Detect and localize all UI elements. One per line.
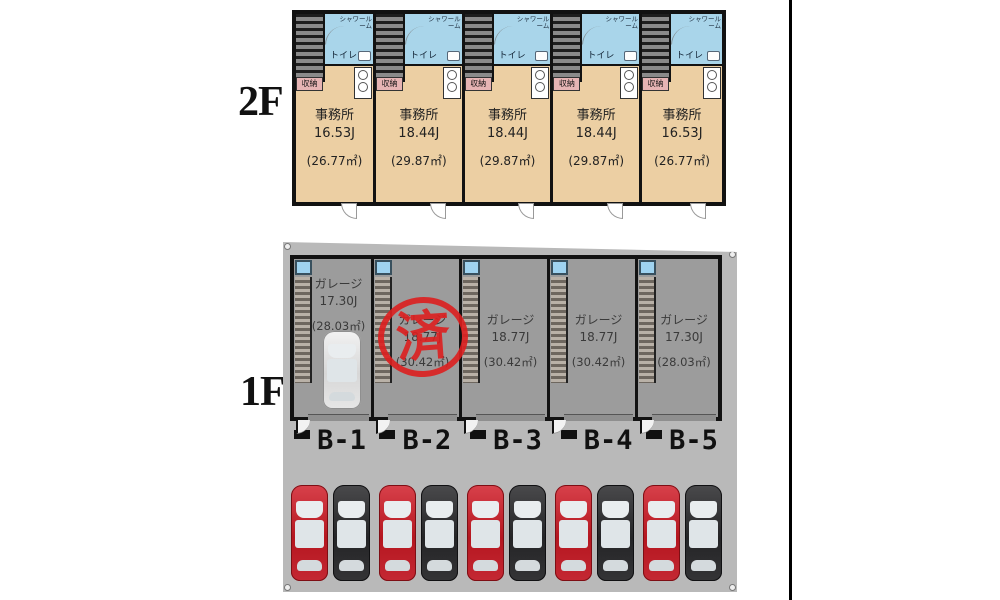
toilet-label: トイレ	[330, 48, 357, 61]
room-type-label: 事務所	[296, 104, 373, 123]
parking-car-icon	[333, 485, 370, 581]
room-size-jou: 18.44J	[553, 126, 639, 141]
parking-car-icon	[555, 485, 592, 581]
floor-1-building: ガレージ 17.30J (28.03㎡) ガレージ 18.77J (30.42㎡…	[290, 255, 722, 421]
parking-car-icon	[379, 485, 416, 581]
parking-car-icon	[421, 485, 458, 581]
parked-car-icon	[323, 331, 361, 409]
parking-car-icon	[509, 485, 546, 581]
toilet-label: トイレ	[587, 48, 614, 61]
office-unit-5: シャワールーム トイレ 収納 事務所 16.53J (26.77㎡)	[642, 14, 722, 202]
room-size-m2: (26.77㎡)	[296, 152, 373, 169]
stairs-icon	[376, 14, 405, 82]
entry-door-arc-icon	[518, 203, 534, 219]
room-type-label: 事務所	[642, 104, 722, 123]
room-type-label: 事務所	[376, 104, 462, 123]
garage-size-jou: 18.77J	[474, 330, 547, 344]
office-unit-1: シャワールーム トイレ 収納 事務所 16.53J (26.77㎡)	[296, 14, 376, 202]
survey-marker-icon	[729, 251, 736, 258]
toilet-icon	[447, 51, 460, 61]
floor-plan-image: 2F シャワールーム トイレ 収納 事務所 16.53J (26.77㎡) シャ…	[0, 0, 1000, 600]
garage-size-m2: (30.42㎡)	[562, 354, 635, 370]
unit-id-label-b5: B-5	[642, 425, 722, 456]
garage-label-block: ガレージ 18.77J (30.42㎡)	[474, 311, 547, 370]
parking-car-icon	[597, 485, 634, 581]
entry-door-arc-icon	[341, 203, 357, 219]
room-size-m2: (29.87㎡)	[553, 152, 639, 169]
office-label-block: 事務所 18.44J (29.87㎡)	[465, 104, 551, 169]
room-size-jou: 16.53J	[642, 126, 722, 141]
shower-room-label: シャワールーム	[602, 16, 638, 31]
garage-shutter	[308, 414, 369, 421]
room-size-m2: (29.87㎡)	[465, 152, 551, 169]
garage-type-label: ガレージ	[650, 311, 718, 328]
room-size-m2: (29.87㎡)	[376, 152, 462, 169]
garage-size-jou: 17.30J	[650, 330, 718, 344]
office-unit-4: シャワールーム トイレ 収納 事務所 18.44J (29.87㎡)	[553, 14, 642, 202]
parking-car-icon	[467, 485, 504, 581]
toilet-icon	[535, 51, 548, 61]
garage-shutter	[388, 414, 457, 421]
garage-size-jou: 17.30J	[306, 294, 371, 308]
floor-2-plan: シャワールーム トイレ 収納 事務所 16.53J (26.77㎡) シャワール…	[292, 10, 726, 206]
floor-2-label: 2F	[238, 78, 283, 126]
garage-shutter	[564, 414, 633, 421]
office-label-block: 事務所 18.44J (29.87㎡)	[376, 104, 462, 169]
shower-room-label: シャワールーム	[513, 16, 549, 31]
kitchen-stove-icon	[531, 67, 549, 99]
toilet-icon	[358, 51, 371, 61]
room-size-jou: 18.44J	[465, 126, 551, 141]
kitchen-stove-icon	[354, 67, 372, 99]
garage-unit-b2: ガレージ 18.77J (30.42㎡) 済	[374, 259, 462, 417]
survey-marker-icon	[729, 584, 736, 591]
garage-type-label: ガレージ	[306, 275, 371, 292]
shower-room-label: シャワールーム	[425, 16, 461, 31]
garage-label-block: ガレージ 17.30J (28.03㎡)	[306, 275, 371, 334]
toilet-label: トイレ	[499, 48, 526, 61]
entry-door-arc-icon	[690, 203, 706, 219]
window-icon	[639, 260, 656, 275]
parking-car-icon	[643, 485, 680, 581]
garage-unit-b5: ガレージ 17.30J (28.03㎡)	[638, 259, 718, 417]
parking-area	[291, 485, 727, 581]
storage-label: 収納	[642, 77, 669, 91]
parking-car-icon	[291, 485, 328, 581]
toilet-label: トイレ	[410, 48, 437, 61]
garage-unit-b1: ガレージ 17.30J (28.03㎡)	[294, 259, 374, 417]
window-icon	[295, 260, 312, 275]
storage-label: 収納	[376, 77, 403, 91]
site-lot: ガレージ 17.30J (28.03㎡) ガレージ 18.77J (30.42㎡…	[283, 242, 737, 592]
garage-type-label: ガレージ	[562, 311, 635, 328]
garage-label-block: ガレージ 17.30J (28.03㎡)	[650, 311, 718, 370]
office-label-block: 事務所 18.44J (29.87㎡)	[553, 104, 639, 169]
room-type-label: 事務所	[465, 104, 551, 123]
garage-size-jou: 18.77J	[562, 330, 635, 344]
garage-type-label: ガレージ	[474, 311, 547, 328]
garage-size-m2: (28.03㎡)	[650, 354, 718, 370]
survey-marker-icon	[284, 584, 291, 591]
entry-door-arc-icon	[607, 203, 623, 219]
toilet-label: トイレ	[676, 48, 703, 61]
room-size-jou: 18.44J	[376, 126, 462, 141]
garage-unit-b4: ガレージ 18.77J (30.42㎡)	[550, 259, 638, 417]
floor-1-label: 1F	[240, 368, 285, 416]
vertical-divider-line	[789, 0, 792, 600]
office-label-block: 事務所 16.53J (26.77㎡)	[642, 104, 722, 169]
garage-shutter	[476, 414, 545, 421]
window-icon	[463, 260, 480, 275]
storage-label: 収納	[465, 77, 492, 91]
toilet-icon	[624, 51, 637, 61]
unit-id-label-b3: B-3	[461, 425, 552, 456]
shower-room-label: シャワールーム	[685, 16, 721, 31]
survey-marker-icon	[284, 243, 291, 250]
office-label-block: 事務所 16.53J (26.77㎡)	[296, 104, 373, 169]
kitchen-stove-icon	[443, 67, 461, 99]
storage-label: 収納	[296, 77, 323, 91]
parking-car-icon	[685, 485, 722, 581]
kitchen-stove-icon	[620, 67, 638, 99]
storage-label: 収納	[553, 77, 580, 91]
entry-door-arc-icon	[430, 203, 446, 219]
window-icon	[551, 260, 568, 275]
stairs-icon	[465, 14, 494, 82]
garage-unit-b3: ガレージ 18.77J (30.42㎡)	[462, 259, 550, 417]
office-unit-3: シャワールーム トイレ 収納 事務所 18.44J (29.87㎡)	[465, 14, 554, 202]
unit-id-row: B-1 B-2 B-3 B-4 B-5	[290, 425, 722, 456]
stairs-icon	[296, 14, 325, 82]
room-size-jou: 16.53J	[296, 126, 373, 141]
garage-shutter	[652, 414, 716, 421]
unit-id-label-b4: B-4	[551, 425, 642, 456]
room-size-m2: (26.77㎡)	[642, 152, 722, 169]
window-icon	[375, 260, 392, 275]
room-type-label: 事務所	[553, 104, 639, 123]
stairs-icon	[642, 14, 671, 82]
office-unit-2: シャワールーム トイレ 収納 事務所 18.44J (29.87㎡)	[376, 14, 465, 202]
garage-size-m2: (30.42㎡)	[474, 354, 547, 370]
toilet-icon	[707, 51, 720, 61]
garage-label-block: ガレージ 18.77J (30.42㎡)	[562, 311, 635, 370]
kitchen-stove-icon	[703, 67, 721, 99]
stairs-icon	[553, 14, 582, 82]
